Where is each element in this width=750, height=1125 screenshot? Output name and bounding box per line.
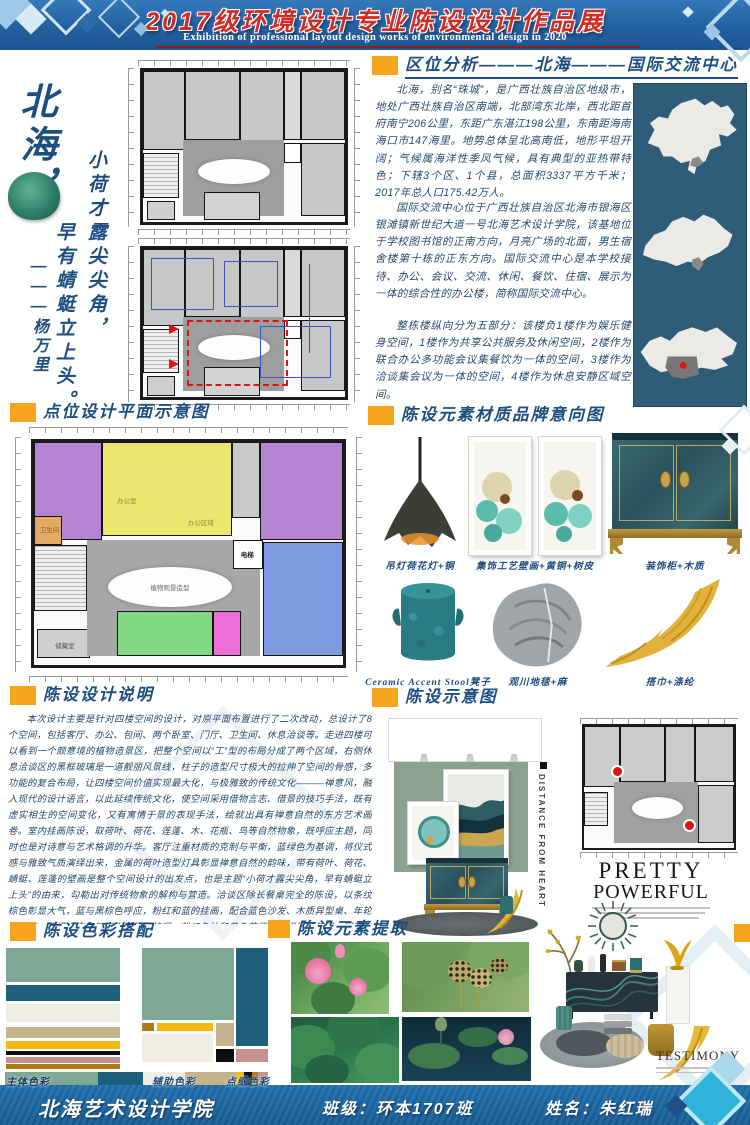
color-swatch-tan (216, 1023, 234, 1046)
lotus-photo-seedpods (402, 942, 529, 1012)
label-elevator: 电梯 (241, 549, 254, 559)
material-item: 集饰工艺壁画+黄铜+树皮 (466, 426, 604, 572)
room-dining (263, 542, 343, 656)
lotus-leaf-image (8, 172, 60, 220)
section-marker (734, 924, 750, 942)
display-scene-image: DISTANCE FROM HEART (380, 714, 556, 936)
lotus-photo-leaves (291, 1017, 399, 1083)
section-description: 陈设设计说明 (10, 686, 154, 705)
color-swatch-ivory (142, 1034, 213, 1062)
location-paragraph-1: 北海，别名“珠城”，是广西壮族自治区地级市，地处广西壮族自治区南端，北部湾东北岸… (375, 82, 631, 202)
color-swatch-teal (6, 985, 120, 1001)
color-swatch-yellow (6, 1041, 120, 1049)
header-banner: 2017级环境设计专业陈设设计作品展 Exhibition of profess… (0, 0, 750, 50)
pedestal (666, 966, 690, 1024)
section-marker (10, 922, 36, 941)
route-path (187, 320, 288, 386)
stool-image (391, 579, 465, 671)
display-floor-plan (572, 718, 746, 858)
color-swatch-tan (6, 1027, 120, 1038)
lotus-photo-flowers (291, 942, 389, 1014)
color-swatch-pink (236, 1049, 268, 1062)
section-title: 区位分析———北海———国际交流中心 (405, 56, 738, 79)
section-title: 陈设色彩搭配 (43, 922, 154, 940)
decor-jar (574, 960, 583, 972)
section-marker (268, 920, 290, 938)
palette-label-accent: 点缀色彩 (226, 1073, 270, 1088)
hotspot-dot (683, 819, 696, 832)
label-toilet: 卫生间 (40, 524, 60, 534)
decor-bottle (600, 954, 606, 972)
maps-panel (633, 83, 747, 407)
gold-lamp (660, 934, 694, 970)
floor-plan-base (128, 60, 360, 235)
label-office-area: 办公区域 (188, 517, 214, 527)
decor-vase (588, 956, 595, 972)
sideboard-image (566, 972, 658, 1012)
wall-art-image (469, 437, 531, 555)
room-lounge (260, 442, 343, 540)
palette-label-main: 主体色彩 (6, 1073, 50, 1088)
school-name: 北海艺术设计学院 (38, 1093, 214, 1122)
material-item: Ceramic Accent Stool凳子 (378, 572, 478, 688)
color-swatch-pink (6, 1057, 120, 1063)
color-swatch-sage (142, 948, 234, 1020)
hotspot-dot (611, 765, 624, 778)
material-caption: 观川地毯+麻 (508, 674, 567, 688)
teal-towel (556, 1006, 572, 1030)
section-marker (372, 688, 398, 707)
palette-label-aux: 辅助色彩 (152, 1073, 196, 1088)
color-swatch-sage (6, 948, 120, 982)
route-arrow (169, 324, 179, 334)
poem-author: ———杨万里 (26, 258, 50, 375)
label-storage: 储藏室 (55, 640, 75, 650)
section-marker (10, 686, 36, 705)
material-caption: 装饰柜+木质 (645, 558, 704, 572)
material-item: 吊灯荷花灯+铜 (374, 430, 466, 572)
material-caption: 搭巾+涤纶 (646, 674, 695, 688)
map-beihai (634, 302, 746, 402)
material-item: 搭巾+涤纶 (594, 572, 746, 688)
section-title: 点位设计平面示意图 (43, 403, 210, 421)
poem-line-1: 小荷才露尖尖角， (82, 150, 109, 342)
pouf (606, 1034, 644, 1058)
material-caption: 集饰工艺壁画+黄铜+树皮 (476, 558, 594, 572)
poem-line-2: 早有蜻蜓立上头。 (50, 222, 77, 414)
section-colors: 陈设色彩搭配 (10, 922, 154, 941)
site-marker-dot (680, 362, 687, 369)
color-swatch-ivory (6, 1004, 120, 1022)
circulation-lines (151, 258, 214, 310)
room-rest-talk (117, 611, 213, 656)
circulation-lines (224, 261, 279, 307)
color-swatch-gold (6, 1064, 120, 1069)
color-swatch-yellow (157, 1023, 213, 1031)
poster: 2017级环境设计专业陈设设计作品展 Exhibition of profess… (0, 0, 750, 1125)
scene-vertical-caption: DISTANCE FROM HEART (537, 774, 546, 908)
map-china (634, 92, 746, 192)
material-caption: 吊灯荷花灯+铜 (385, 558, 455, 572)
location-paragraph-3: 整栋楼纵向分为五部分：该楼负1楼作为娱乐健身空间，1楼作为共享公共服务及休闲空间… (375, 318, 631, 404)
circulation-lines (309, 264, 334, 353)
section-elements: 陈设元素提取 (268, 920, 408, 938)
label-office: 办公室 (117, 495, 137, 505)
footer-bar: 北海艺术设计学院 班级：环本1707班 姓名：朱红瑞 (0, 1085, 750, 1125)
label-plant-feature: 植物观景造型 (150, 582, 189, 592)
pendant-lamp-image (378, 437, 462, 555)
room-hall (213, 611, 241, 656)
cabinet-image (608, 433, 742, 555)
section-point-plan: 点位设计平面示意图 (10, 403, 210, 422)
wall-art-image (539, 437, 601, 555)
color-swatch-gold (142, 1023, 154, 1031)
floor-plan-circulation (128, 238, 360, 410)
section-title: 陈设元素提取 (297, 920, 408, 938)
colored-floor-plan: 办公室 办公区域 卫生间 电梯 植物观景造型 储藏室 (15, 427, 362, 682)
rug-image (486, 579, 590, 671)
decor-box (612, 960, 626, 971)
section-marker (10, 403, 36, 422)
palette-bar-teal (98, 1072, 143, 1085)
section-marker (368, 406, 394, 425)
color-swatch-black (216, 1049, 234, 1062)
section-display: 陈设示意图 (372, 688, 498, 707)
class-label: 班级：环本1707班 (322, 1095, 474, 1119)
color-swatch-teal (236, 948, 268, 1046)
student-name: 姓名：朱红瑞 (545, 1095, 653, 1119)
section-title: 陈设示意图 (405, 688, 498, 706)
section-title: 陈设元素材质品牌意向图 (401, 406, 605, 424)
section-title: 陈设设计说明 (43, 686, 154, 704)
decor-teal-box (630, 958, 642, 973)
section-materials: 陈设元素材质品牌意向图 (368, 406, 605, 425)
subtitle-underline (155, 46, 640, 48)
location-paragraph-2: 国际交流中心位于广西壮族自治区北海市银海区银滩镇新世纪大道一号北海艺术设计学院，… (375, 200, 631, 303)
towel-stack (604, 1014, 632, 1034)
section-location: 区位分析———北海———国际交流中心 (372, 56, 738, 79)
room-gray (232, 442, 260, 518)
lotus-photo-pond (402, 1017, 531, 1081)
stairwell (34, 545, 87, 612)
color-swatch-black (6, 1051, 120, 1055)
material-caption: Ceramic Accent Stool凳子 (365, 674, 491, 688)
scene-pot (500, 896, 513, 914)
section-marker (372, 56, 398, 75)
exhibition-subtitle: Exhibition of professional layout design… (0, 32, 750, 43)
material-item: 观川地毯+麻 (480, 578, 596, 688)
artwork-lotus (408, 802, 458, 864)
map-guangxi (634, 196, 746, 296)
route-arrow (169, 359, 179, 369)
fabric-image (598, 577, 742, 671)
description-text: 本次设计主要是针对四楼空间的设计，对原平面布置进行了二次改动，总设计了8个空间，… (8, 712, 372, 924)
